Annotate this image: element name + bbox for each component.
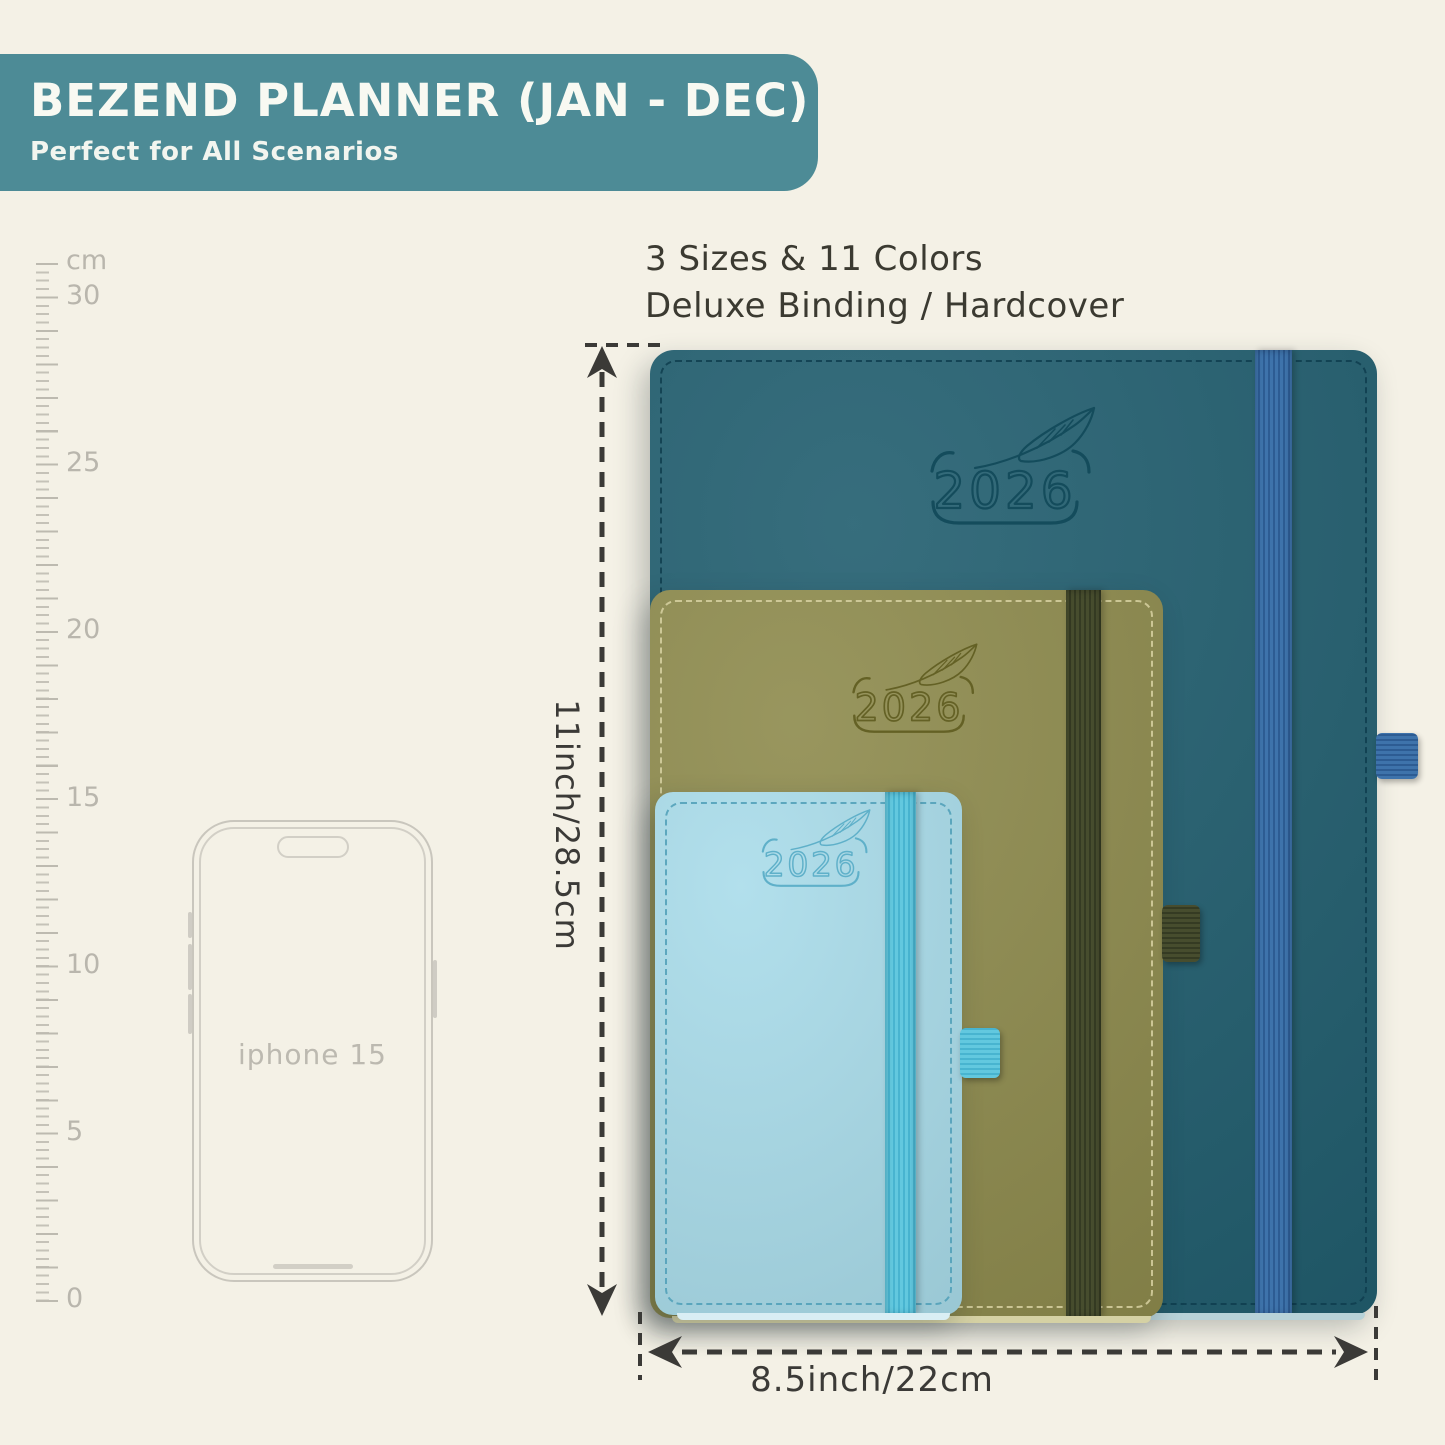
pen-loop — [960, 1028, 1000, 1078]
pen-loop — [1162, 905, 1200, 962]
height-dimension-label: 11inch/28.5cm — [548, 655, 586, 995]
phone-side-button — [433, 960, 437, 1018]
year-text: 2026 — [933, 462, 1076, 520]
year-text: 2026 — [855, 685, 964, 729]
width-dimension-label: 8.5inch/22cm — [672, 1360, 1072, 1400]
ruler: cm 30 25 20 15 10 5 0 — [36, 255, 166, 1330]
pen-loop — [1376, 733, 1418, 779]
ruler-tick-label: 10 — [66, 950, 100, 980]
arrowhead-down — [587, 1284, 617, 1316]
feather-shaft — [791, 810, 870, 850]
ruler-tick-label: 25 — [66, 448, 100, 478]
phone-side-button — [188, 944, 192, 990]
arrowhead-up — [587, 346, 617, 378]
elastic-band — [1255, 350, 1292, 1315]
dynamic-island — [277, 836, 349, 858]
ruler-major-ticks — [36, 263, 58, 1303]
headline-sizes-colors: 3 Sizes & 11 Colors — [645, 236, 1124, 283]
phone-model-label: iphone 15 — [194, 1038, 431, 1071]
ruler-tick-label: 15 — [66, 783, 100, 813]
headline: 3 Sizes & 11 Colors Deluxe Binding / Har… — [645, 236, 1124, 330]
phone-side-button — [188, 912, 192, 938]
banner-title: BEZEND PLANNER (JAN - DEC) — [30, 74, 818, 127]
phone-side-button — [188, 994, 192, 1034]
arrowhead-right — [1334, 1336, 1368, 1368]
headline-binding: Deluxe Binding / Hardcover — [645, 283, 1124, 330]
ruler-unit-label: cm — [66, 246, 107, 276]
elastic-band — [1066, 590, 1101, 1318]
year-logo: 2026 — [745, 808, 877, 887]
feather-shaft — [975, 408, 1094, 468]
product-image-canvas: BEZEND PLANNER (JAN - DEC) Perfect for A… — [0, 0, 1445, 1445]
ruler-tick-label: 0 — [66, 1284, 83, 1314]
year-text: 2026 — [764, 845, 859, 884]
year-logo: 2026 — [833, 642, 985, 733]
ruler-tick-label: 30 — [66, 281, 100, 311]
year-logo: 2026 — [905, 405, 1105, 525]
iphone-outline: iphone 15 — [192, 820, 433, 1282]
banner-subtitle: Perfect for All Scenarios — [30, 137, 818, 167]
banner: BEZEND PLANNER (JAN - DEC) Perfect for A… — [0, 54, 818, 191]
elastic-band — [885, 792, 916, 1315]
planner-small-blue: 2026 — [655, 792, 962, 1315]
feather-shaft — [886, 644, 976, 690]
ruler-tick-label: 20 — [66, 615, 100, 645]
phone-bottom-port — [273, 1264, 353, 1269]
ruler-tick-label: 5 — [66, 1117, 83, 1147]
